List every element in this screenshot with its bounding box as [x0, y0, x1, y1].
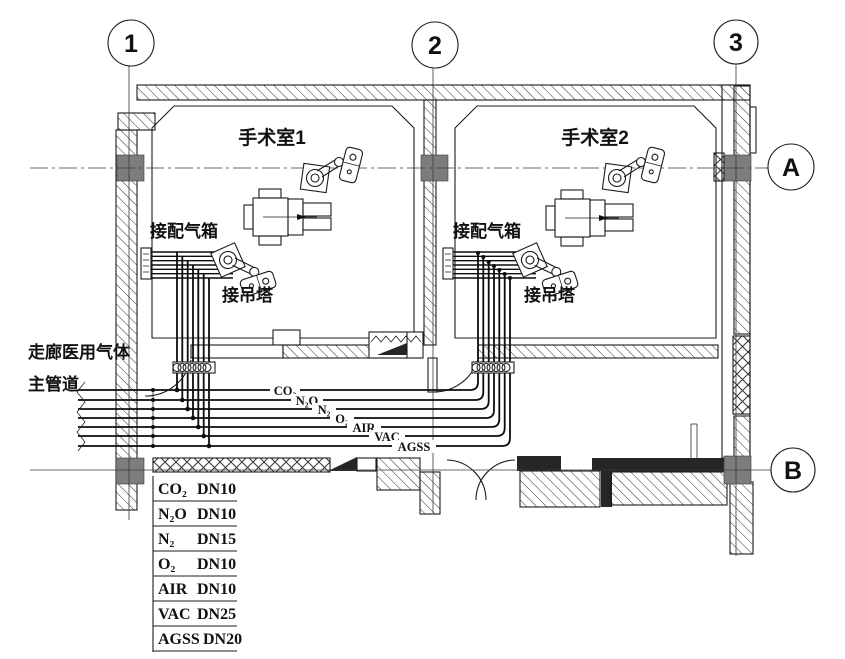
b-wall-black-tee-top	[592, 458, 611, 471]
legend-gas-6: AGSS	[158, 631, 200, 648]
corridor-partition	[691, 424, 697, 458]
room2-wall-penetration	[472, 362, 514, 373]
room1-gas-box	[141, 248, 151, 279]
grid-label-3: 3	[729, 29, 743, 57]
pipe-label-agss: AGSS	[398, 440, 431, 454]
room2-pendant-label: 接吊塔	[524, 285, 576, 305]
right-wall-window	[750, 107, 756, 153]
pipe-line-labels: CO₂ N₂O N₂ O₂ AIR VAC AGSS	[270, 384, 436, 454]
room2-ceiling-pendant-top	[602, 146, 665, 192]
b-wall-hatch-room-1	[520, 471, 600, 507]
medical-gas-plan-drawing: 1 2 3 A B	[0, 0, 845, 659]
top-wall	[137, 85, 750, 100]
b-wall-hatch-room-2	[611, 472, 727, 505]
legend-gas-3: O₂	[158, 556, 175, 573]
b-wall-hatch-block	[377, 458, 420, 490]
pipe-label-o2: O₂	[335, 412, 349, 426]
legend-dn-1: DN10	[197, 506, 236, 523]
legend-dn-6: DN20	[203, 631, 242, 648]
right-wall-below-b	[730, 482, 753, 554]
room1-name: 手术室1	[238, 126, 306, 149]
column-1b	[116, 458, 144, 484]
grid-label-1: 1	[124, 30, 138, 58]
b-wall-black-seg-1	[517, 456, 561, 471]
middle-wall-corridor-stub	[428, 358, 437, 392]
corridor-main-label-line2: 主管道	[28, 374, 79, 394]
legend-gas-5: VAC	[158, 606, 191, 623]
pipe-label-n2: N₂	[318, 403, 331, 417]
room2-operating-table	[546, 190, 633, 246]
room1-ceiling-pendant-top	[300, 146, 363, 192]
room2-name: 手术室2	[561, 126, 629, 149]
right-wall-hatch-lower	[734, 416, 750, 458]
pipe-agss	[78, 278, 510, 446]
legend-dn-0: DN10	[197, 481, 236, 498]
south-wall-plain-seg	[191, 345, 283, 358]
room1-pendant-label: 接吊塔	[222, 285, 274, 305]
top-left-wall-step	[118, 113, 155, 130]
legend-dn-3: DN10	[197, 556, 236, 573]
middle-wall	[424, 100, 436, 345]
corridor-south-wall	[153, 424, 727, 514]
column-3a-pad	[714, 153, 724, 181]
right-wall-hatch-upper	[734, 86, 750, 334]
legend-dn-2: DN15	[197, 531, 236, 548]
grid-label-a: A	[782, 154, 800, 182]
room1-gas-box-label: 接配气箱	[150, 221, 218, 241]
pipe-co2	[78, 252, 478, 390]
south-wall-hatch-room2	[478, 345, 718, 358]
room2-gas-box	[443, 248, 453, 279]
legend-gas-4: AIR	[158, 581, 188, 598]
b-wall-small-box	[357, 458, 376, 471]
room2-door-arc	[433, 359, 478, 392]
room1-wall-notch	[273, 330, 300, 345]
b-wall-hatch-block-lower	[420, 472, 440, 514]
legend-gas-1: N₂O	[158, 506, 187, 523]
room1-wall-penetration	[173, 362, 215, 373]
legend-gas-0: CO₂	[158, 481, 187, 498]
corridor-main-label-line1: 走廊医用气体	[28, 342, 131, 362]
grid-label-b: B	[784, 457, 802, 485]
double-door-left-arc	[447, 460, 486, 500]
grid-label-2: 2	[428, 32, 442, 60]
double-door-right-arc	[476, 460, 515, 500]
floor-plan-sheet: 1 2 3 A B	[0, 0, 845, 659]
room2-gas-box-label: 接配气箱	[453, 221, 521, 241]
legend-gas-2: N₂	[158, 531, 175, 548]
pipe-n2o	[78, 256, 483, 400]
room1-operating-table	[244, 189, 331, 245]
left-wall	[116, 130, 137, 510]
b-wall-black-tee-stem	[601, 471, 612, 507]
legend-dn-4: DN10	[197, 581, 236, 598]
right-wall-crosshatch	[733, 336, 750, 414]
legend-dn-5: DN25	[197, 606, 236, 623]
b-wall-door-triangle	[328, 457, 357, 471]
legend-table: CO₂ DN10 N₂O DN10 N₂ DN15 O₂ DN10 AIR DN…	[153, 476, 242, 652]
